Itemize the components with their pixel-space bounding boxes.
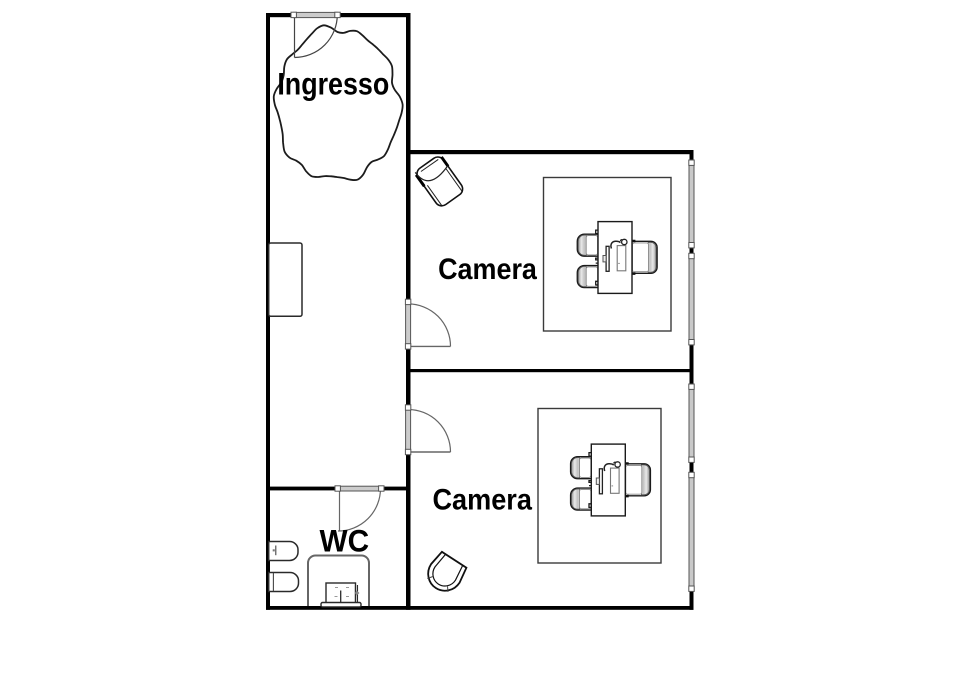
svg-text:Ingresso: Ingresso (277, 67, 389, 101)
svg-text:Camera: Camera (432, 483, 532, 517)
svg-text:Camera: Camera (438, 253, 537, 287)
svg-text:WC: WC (320, 524, 370, 559)
